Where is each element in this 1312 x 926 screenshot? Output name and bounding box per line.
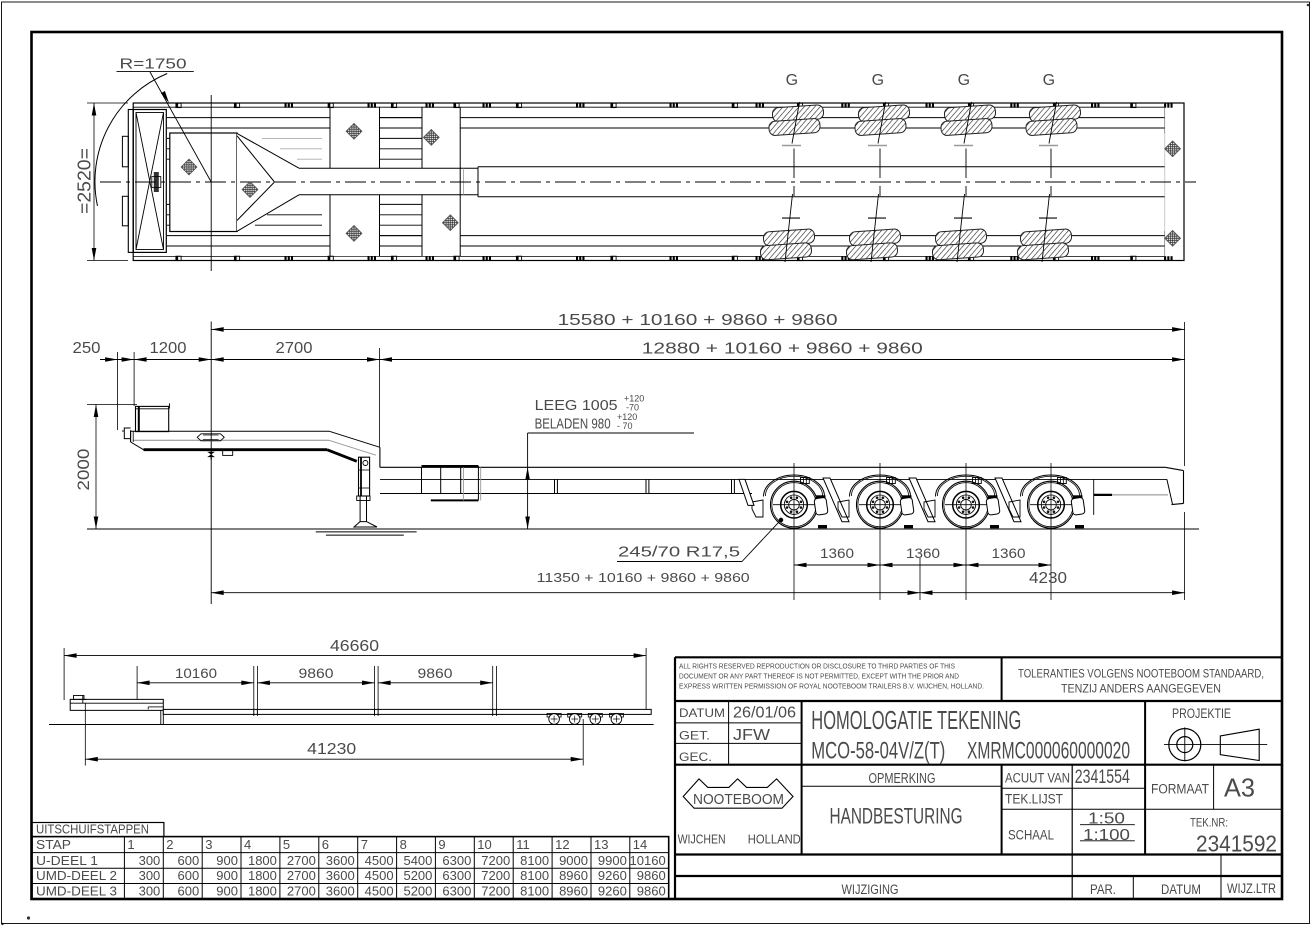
svg-text:2341592: 2341592	[1196, 831, 1277, 857]
svg-text:9900: 9900	[598, 853, 627, 868]
svg-text:ACUUT VAN: ACUUT VAN	[1005, 771, 1070, 786]
svg-text:3: 3	[205, 837, 212, 852]
svg-text:7: 7	[361, 837, 368, 852]
svg-text:10160: 10160	[175, 665, 217, 681]
svg-text:A3: A3	[1224, 773, 1255, 803]
svg-text:26/01/06: 26/01/06	[733, 705, 796, 722]
svg-text:14: 14	[633, 837, 647, 852]
svg-text:GET.: GET.	[679, 729, 710, 743]
svg-text:1360: 1360	[820, 545, 854, 561]
svg-text:300: 300	[139, 868, 161, 883]
svg-text:15580 + 10160 + 9860 + 9: 15580 + 10160 + 9860 + 9860	[558, 312, 838, 329]
svg-text:11350 + 10160 + 9860 + 9: 11350 + 10160 + 9860 + 9860	[537, 570, 750, 585]
svg-text:JFW: JFW	[733, 727, 771, 744]
svg-text:2341554: 2341554	[1075, 767, 1130, 788]
svg-text:4230: 4230	[1029, 570, 1067, 587]
svg-text:UMD-DEEL 3: UMD-DEEL 3	[36, 884, 117, 899]
svg-text:245/70 R17,5: 245/70 R17,5	[618, 544, 740, 561]
svg-text:HOLLAND: HOLLAND	[748, 832, 801, 847]
svg-text:8100: 8100	[520, 868, 549, 883]
svg-text:- 70: - 70	[617, 421, 633, 431]
svg-text:G: G	[958, 72, 970, 89]
svg-text:5: 5	[283, 837, 290, 852]
svg-text:R=1750: R=1750	[120, 57, 187, 73]
svg-text:8100: 8100	[520, 853, 549, 868]
svg-text:46660: 46660	[330, 638, 379, 655]
svg-text:2700: 2700	[287, 884, 316, 899]
svg-text:BELADEN 980: BELADEN 980	[535, 417, 611, 433]
svg-text:5400: 5400	[403, 853, 432, 868]
svg-text:300: 300	[139, 884, 161, 899]
svg-text:9860: 9860	[637, 868, 666, 883]
svg-text:DATUM: DATUM	[1161, 882, 1201, 897]
svg-text:1360: 1360	[992, 545, 1026, 561]
svg-text:9860: 9860	[299, 665, 334, 681]
svg-text:FORMAAT: FORMAAT	[1151, 782, 1209, 797]
svg-text:12880 + 10160 + 9860 + 9: 12880 + 10160 + 9860 + 9860	[642, 341, 923, 358]
svg-text:TENZIJ ANDERS AANGEGEVEN: TENZIJ ANDERS AANGEGEVEN	[1061, 682, 1221, 696]
svg-text:3600: 3600	[326, 868, 355, 883]
svg-text:900: 900	[216, 884, 238, 899]
svg-text:7200: 7200	[481, 868, 510, 883]
svg-text:G: G	[1043, 72, 1055, 89]
svg-text:GEC.: GEC.	[679, 750, 712, 764]
svg-text:8960: 8960	[559, 884, 588, 899]
svg-text:PROJEKTIE: PROJEKTIE	[1172, 706, 1231, 721]
svg-text:TEK.LIJST: TEK.LIJST	[1005, 792, 1063, 807]
svg-text:OPMERKING: OPMERKING	[869, 771, 936, 787]
svg-text:600: 600	[177, 868, 199, 883]
svg-text:2000: 2000	[74, 449, 93, 491]
svg-text:5200: 5200	[403, 868, 432, 883]
svg-text:2700: 2700	[276, 340, 313, 357]
svg-text:2700: 2700	[287, 868, 316, 883]
svg-text:DATUM: DATUM	[679, 706, 725, 720]
svg-text:11: 11	[516, 837, 530, 852]
svg-text:10160: 10160	[630, 853, 666, 868]
svg-text:HOMOLOGATIE TEKENING: HOMOLOGATIE TEKENING	[811, 705, 1021, 735]
svg-text:6: 6	[322, 837, 329, 852]
svg-text:2700: 2700	[287, 853, 316, 868]
svg-text:600: 600	[177, 853, 199, 868]
svg-text:5200: 5200	[403, 884, 432, 899]
svg-text:STAP: STAP	[36, 837, 71, 852]
svg-text:HANDBESTURING: HANDBESTURING	[830, 804, 963, 829]
svg-text:U-DEEL 1: U-DEEL 1	[36, 853, 98, 868]
svg-text:9860: 9860	[418, 665, 453, 681]
svg-text:4500: 4500	[365, 868, 394, 883]
svg-text:900: 900	[216, 853, 238, 868]
svg-text:DOCUMENT OR ANY PART THEREOF I: DOCUMENT OR ANY PART THEREOF IS NOT PERM…	[679, 672, 960, 681]
svg-text:9860: 9860	[637, 884, 666, 899]
svg-text:G: G	[872, 72, 884, 89]
svg-text:ALL RIGHTS RESERVED REPRODUCTI: ALL RIGHTS RESERVED REPRODUCTION OR DISC…	[679, 662, 955, 671]
svg-text:3600: 3600	[326, 853, 355, 868]
svg-text:13: 13	[594, 837, 608, 852]
svg-text:WIJZ.LTR: WIJZ.LTR	[1227, 881, 1276, 896]
svg-text:300: 300	[139, 853, 161, 868]
svg-text:LEEG 1005: LEEG 1005	[535, 398, 618, 414]
svg-text:1800: 1800	[248, 868, 277, 883]
svg-text:41230: 41230	[307, 741, 356, 758]
svg-text:G: G	[786, 72, 798, 89]
svg-text:6300: 6300	[442, 884, 471, 899]
svg-text:12: 12	[555, 837, 569, 852]
svg-text:9260: 9260	[598, 868, 627, 883]
svg-text:NOOTEBOOM: NOOTEBOOM	[693, 791, 784, 808]
svg-text:8100: 8100	[520, 884, 549, 899]
svg-text:7200: 7200	[481, 853, 510, 868]
svg-text:4500: 4500	[365, 853, 394, 868]
svg-text:-70: -70	[626, 403, 639, 413]
svg-text:9260: 9260	[598, 884, 627, 899]
svg-text:MCO-58-04V/Z(T): MCO-58-04V/Z(T)	[811, 738, 945, 765]
svg-text:6300: 6300	[442, 853, 471, 868]
svg-text:WIJCHEN: WIJCHEN	[678, 832, 726, 847]
svg-text:PAR.: PAR.	[1090, 882, 1116, 897]
svg-text:WIJZIGING: WIJZIGING	[842, 882, 899, 897]
svg-text:600: 600	[177, 884, 199, 899]
svg-text:9000: 9000	[559, 853, 588, 868]
svg-text:EXPRESS WRITTEN PERMISSION OF: EXPRESS WRITTEN PERMISSION OF ROYAL NOOT…	[679, 682, 984, 691]
svg-text:900: 900	[216, 868, 238, 883]
svg-text:=2520=: =2520=	[75, 148, 95, 214]
svg-text:4500: 4500	[365, 884, 394, 899]
svg-text:8: 8	[400, 837, 407, 852]
svg-text:1: 1	[127, 837, 134, 852]
svg-text:250: 250	[73, 340, 101, 357]
svg-text:8960: 8960	[559, 868, 588, 883]
svg-text:4: 4	[244, 837, 251, 852]
svg-text:TOLERANTIES VOLGENS NOOTEBOO: TOLERANTIES VOLGENS NOOTEBOOM STANDAARD,	[1018, 667, 1264, 681]
svg-text:2: 2	[166, 837, 173, 852]
svg-text:1200: 1200	[150, 340, 187, 357]
svg-text:7200: 7200	[481, 884, 510, 899]
svg-text:SCHAAL: SCHAAL	[1008, 828, 1054, 843]
svg-text:9: 9	[438, 837, 445, 852]
svg-text:1360: 1360	[906, 545, 940, 561]
svg-text:UITSCHUIFSTAPPEN: UITSCHUIFSTAPPEN	[36, 822, 149, 837]
svg-text:TEK.NR:: TEK.NR:	[1190, 816, 1228, 830]
svg-text:6300: 6300	[442, 868, 471, 883]
svg-text:XMRMC000060000020: XMRMC000060000020	[967, 738, 1130, 765]
svg-text:UMD-DEEL 2: UMD-DEEL 2	[36, 868, 117, 883]
svg-text:3600: 3600	[326, 884, 355, 899]
svg-text:1800: 1800	[248, 853, 277, 868]
svg-text:1800: 1800	[248, 884, 277, 899]
svg-text:10: 10	[477, 837, 491, 852]
